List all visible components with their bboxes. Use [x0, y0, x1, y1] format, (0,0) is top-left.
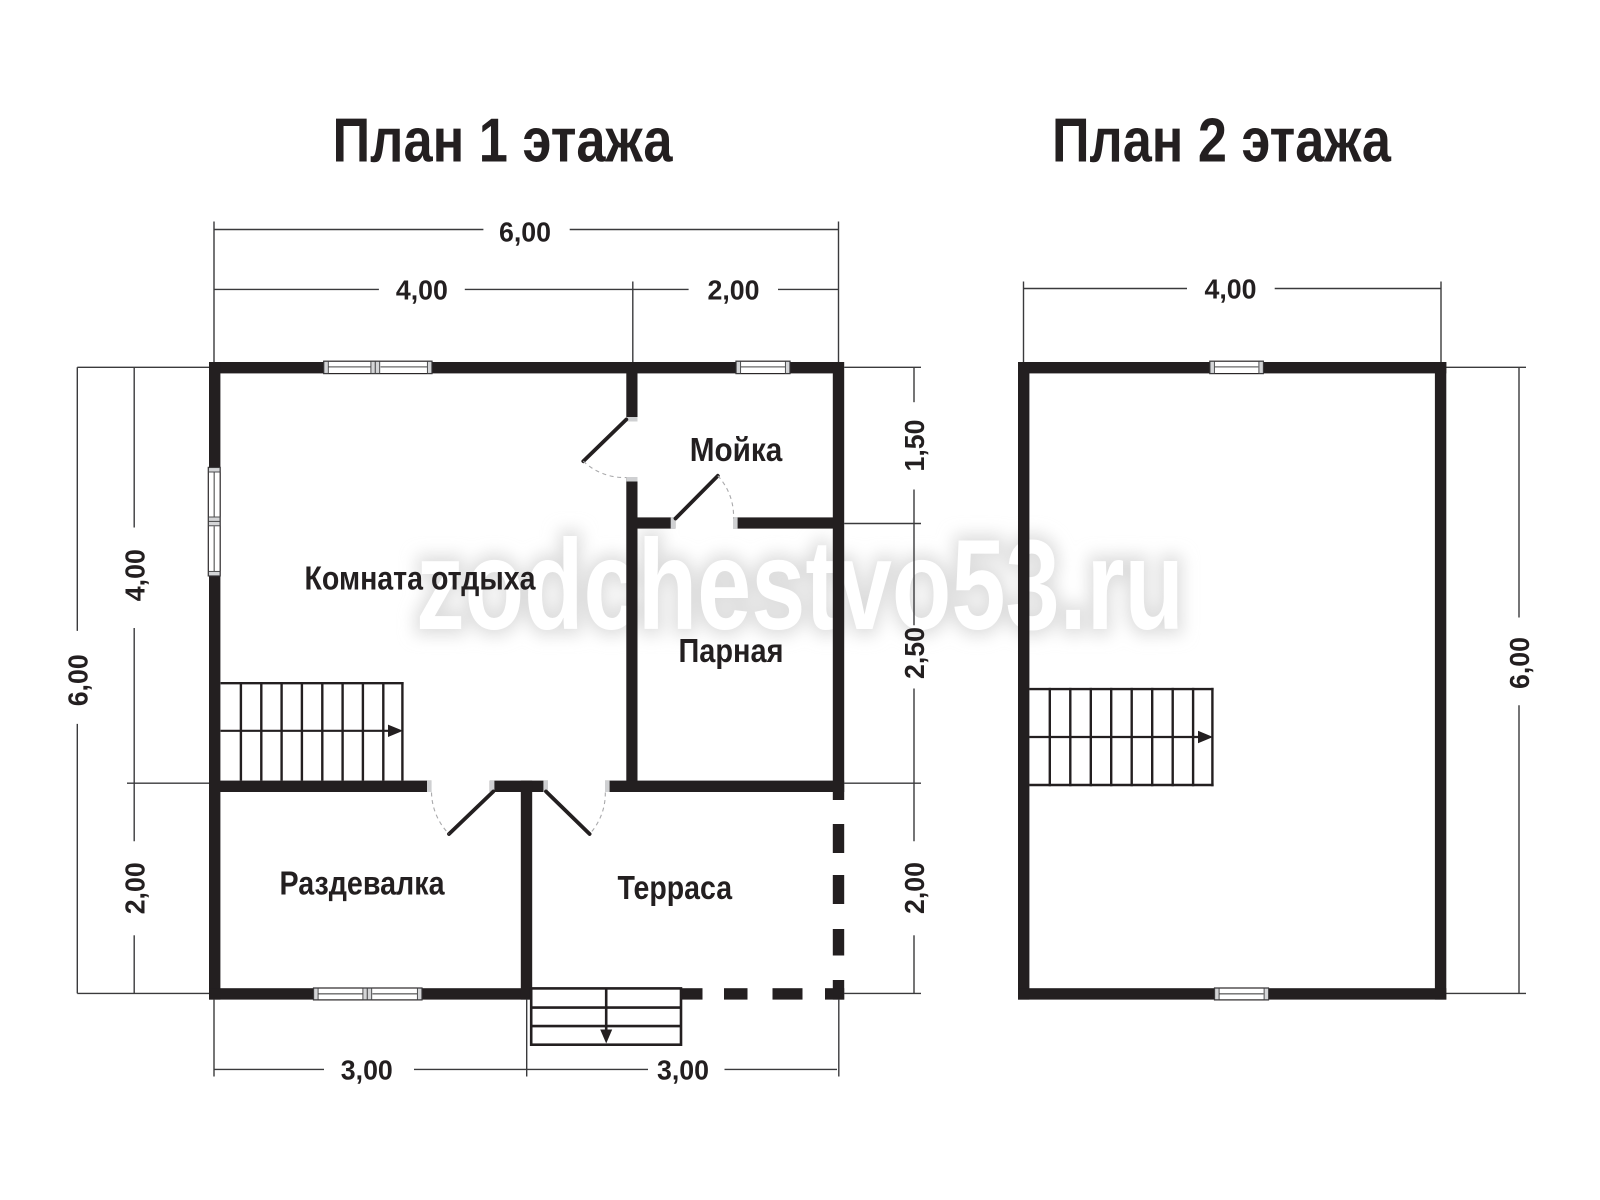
svg-text:4,00: 4,00 — [396, 275, 448, 306]
svg-text:2,50: 2,50 — [899, 627, 930, 679]
svg-text:Мойка: Мойка — [690, 431, 783, 468]
svg-text:6,00: 6,00 — [63, 654, 94, 706]
svg-text:План 1 этажа: План 1 этажа — [333, 107, 673, 176]
svg-text:2,00: 2,00 — [708, 275, 760, 306]
svg-text:Раздевалка: Раздевалка — [280, 865, 446, 902]
svg-text:Терраса: Терраса — [618, 869, 733, 906]
svg-text:6,00: 6,00 — [499, 216, 551, 247]
svg-text:3,00: 3,00 — [341, 1055, 393, 1086]
svg-text:4,00: 4,00 — [1205, 274, 1257, 305]
svg-text:Парная: Парная — [679, 632, 784, 669]
svg-text:Комната отдыха: Комната отдыха — [305, 560, 537, 597]
svg-text:6,00: 6,00 — [1504, 637, 1535, 689]
svg-text:План 2 этажа: План 2 этажа — [1052, 107, 1391, 176]
svg-text:2,00: 2,00 — [899, 862, 930, 914]
svg-text:2,00: 2,00 — [119, 862, 150, 914]
svg-text:3,00: 3,00 — [657, 1055, 709, 1086]
svg-text:4,00: 4,00 — [119, 549, 150, 601]
svg-text:1,50: 1,50 — [899, 420, 930, 472]
